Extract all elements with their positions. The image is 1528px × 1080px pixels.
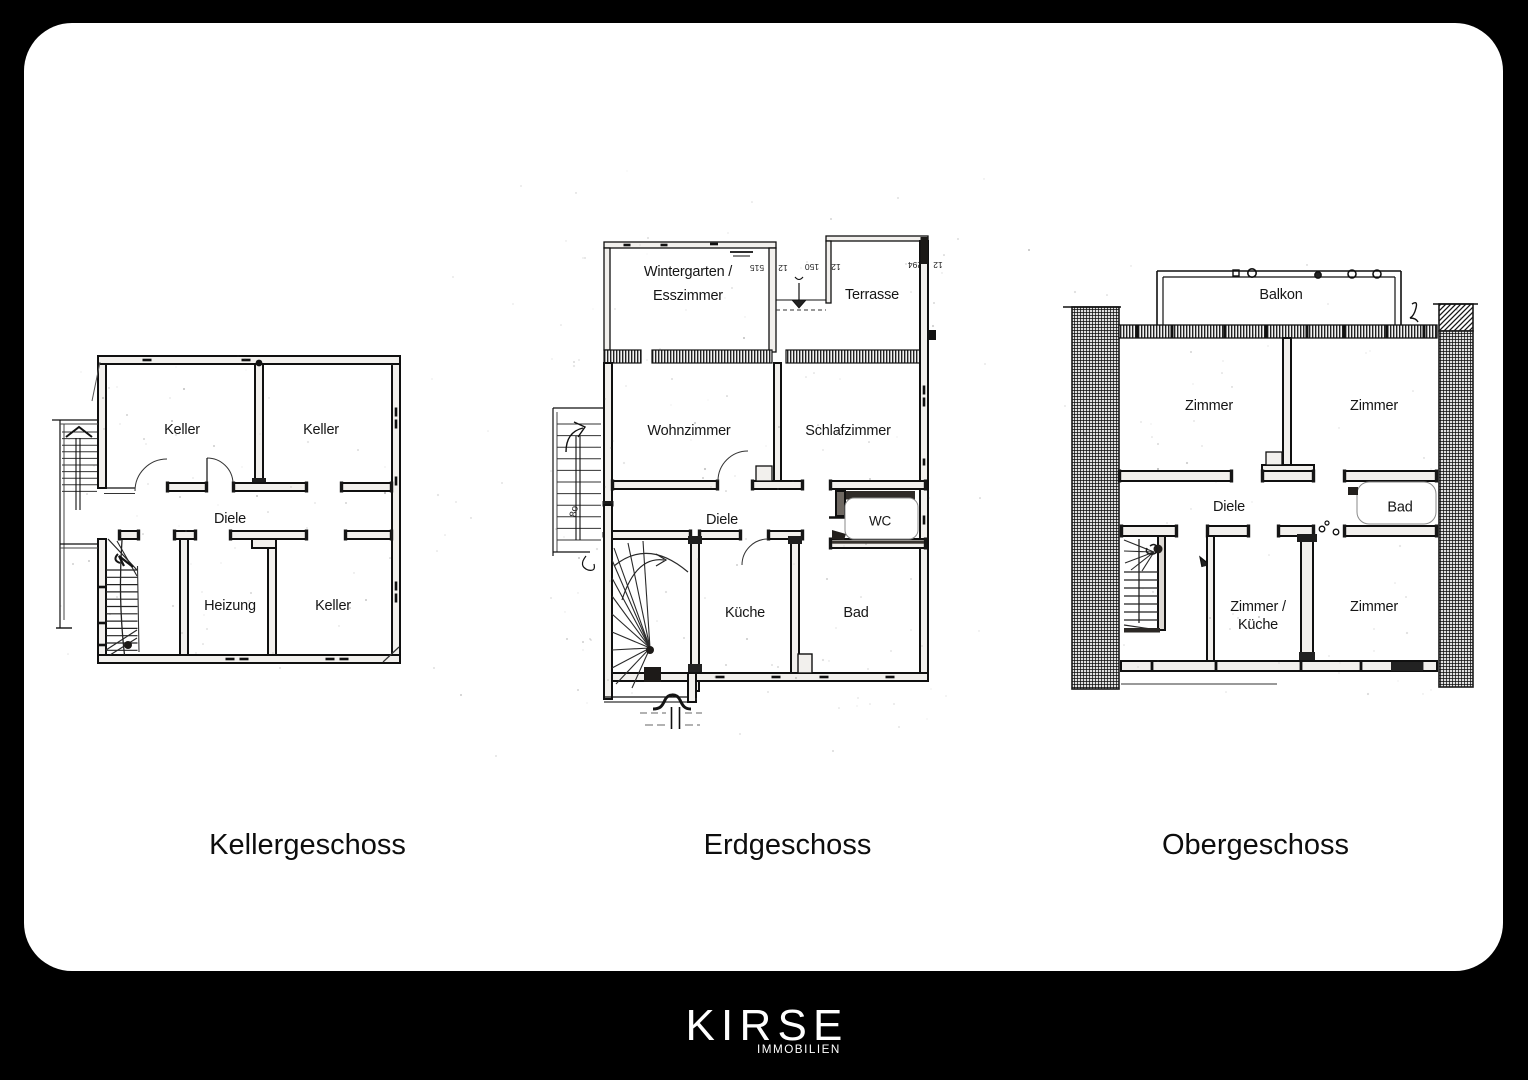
svg-text:Diele: Diele bbox=[1213, 499, 1245, 515]
svg-text:IMMOBILIEN: IMMOBILIEN bbox=[757, 1043, 841, 1056]
svg-text:Wintergarten /: Wintergarten / bbox=[644, 264, 733, 280]
svg-text:515: 515 bbox=[750, 263, 764, 273]
svg-text:150: 150 bbox=[805, 262, 819, 272]
svg-text:Zimmer: Zimmer bbox=[1350, 599, 1398, 615]
svg-text:Diele: Diele bbox=[706, 512, 738, 528]
svg-text:Esszimmer: Esszimmer bbox=[653, 288, 723, 304]
svg-text:Erdgeschoss: Erdgeschoss bbox=[704, 829, 872, 861]
svg-text:Balkon: Balkon bbox=[1259, 287, 1302, 303]
svg-text:Heizung: Heizung bbox=[204, 598, 256, 614]
svg-text:Zimmer: Zimmer bbox=[1350, 398, 1398, 414]
svg-text:Diele: Diele bbox=[214, 511, 246, 527]
svg-text:Bad: Bad bbox=[843, 605, 868, 621]
svg-text:12: 12 bbox=[831, 262, 841, 272]
svg-text:Zimmer: Zimmer bbox=[1185, 398, 1233, 414]
svg-text:Terrasse: Terrasse bbox=[845, 287, 899, 303]
svg-text:Keller: Keller bbox=[164, 422, 200, 438]
svg-text:WC: WC bbox=[869, 514, 892, 529]
svg-text:Kellergeschoss: Kellergeschoss bbox=[209, 829, 406, 861]
svg-text:Obergeschoss: Obergeschoss bbox=[1162, 829, 1349, 861]
svg-text:Küche: Küche bbox=[725, 605, 765, 621]
svg-text:Zimmer /: Zimmer / bbox=[1230, 599, 1287, 615]
svg-text:12: 12 bbox=[933, 260, 943, 270]
svg-text:Keller: Keller bbox=[315, 598, 351, 614]
svg-text:Keller: Keller bbox=[303, 422, 339, 438]
svg-text:Bad: Bad bbox=[1387, 500, 1412, 516]
svg-text:Küche: Küche bbox=[1238, 617, 1278, 633]
svg-text:Wohnzimmer: Wohnzimmer bbox=[647, 423, 731, 439]
svg-text:12: 12 bbox=[778, 263, 788, 273]
